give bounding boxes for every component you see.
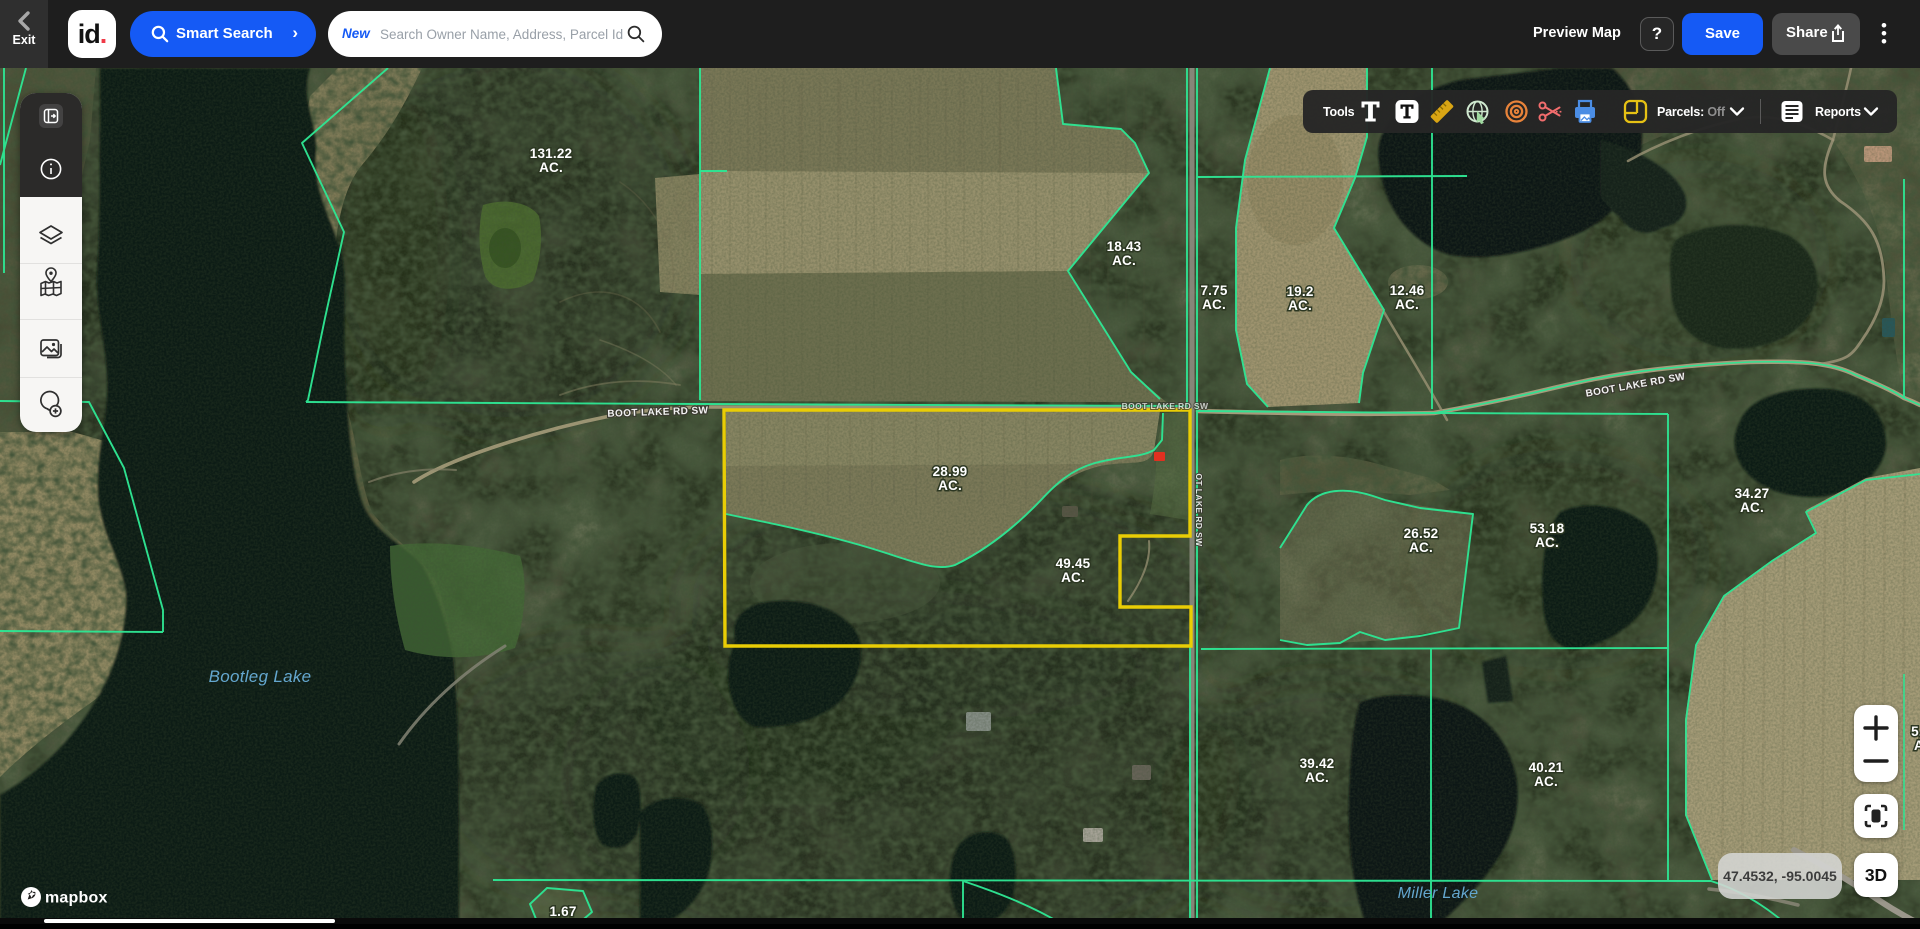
svg-text:A: A bbox=[1914, 738, 1920, 753]
svg-text:AC.: AC. bbox=[1535, 535, 1559, 550]
svg-text:BOOT LAKE RD SW: BOOT LAKE RD SW bbox=[1122, 401, 1209, 411]
svg-text:AC.: AC. bbox=[1288, 298, 1312, 313]
svg-text:18.43: 18.43 bbox=[1107, 239, 1142, 254]
svg-text:40.21: 40.21 bbox=[1529, 760, 1564, 775]
svg-text:Miller Lake: Miller Lake bbox=[1398, 885, 1479, 902]
svg-text:39.42: 39.42 bbox=[1300, 756, 1335, 771]
svg-text:AC.: AC. bbox=[938, 478, 962, 493]
svg-text:AC.: AC. bbox=[1740, 500, 1764, 515]
svg-text:19.2: 19.2 bbox=[1286, 284, 1313, 299]
svg-text:1.67: 1.67 bbox=[549, 904, 576, 919]
svg-text:AC.: AC. bbox=[1061, 570, 1085, 585]
svg-text:mapbox: mapbox bbox=[45, 890, 108, 907]
svg-text:26.52: 26.52 bbox=[1404, 526, 1439, 541]
svg-text:53.18: 53.18 bbox=[1530, 521, 1565, 536]
svg-text:AC.: AC. bbox=[539, 160, 563, 175]
svg-text:OT LAKE RD SW: OT LAKE RD SW bbox=[1194, 473, 1204, 547]
svg-text:7.75: 7.75 bbox=[1200, 283, 1227, 298]
svg-text:AC.: AC. bbox=[1112, 253, 1136, 268]
svg-text:5.: 5. bbox=[1911, 724, 1920, 739]
svg-text:28.99: 28.99 bbox=[933, 464, 968, 479]
svg-text:12.46: 12.46 bbox=[1390, 283, 1425, 298]
svg-text:34.27: 34.27 bbox=[1735, 486, 1770, 501]
svg-text:49.45: 49.45 bbox=[1056, 556, 1091, 571]
svg-text:AC.: AC. bbox=[1534, 774, 1558, 789]
svg-text:Bootleg Lake: Bootleg Lake bbox=[209, 667, 312, 686]
svg-text:AC.: AC. bbox=[1202, 297, 1226, 312]
svg-text:131.22: 131.22 bbox=[530, 146, 573, 161]
svg-text:AC.: AC. bbox=[1409, 540, 1433, 555]
svg-text:AC.: AC. bbox=[1395, 297, 1419, 312]
svg-text:AC.: AC. bbox=[1305, 770, 1329, 785]
